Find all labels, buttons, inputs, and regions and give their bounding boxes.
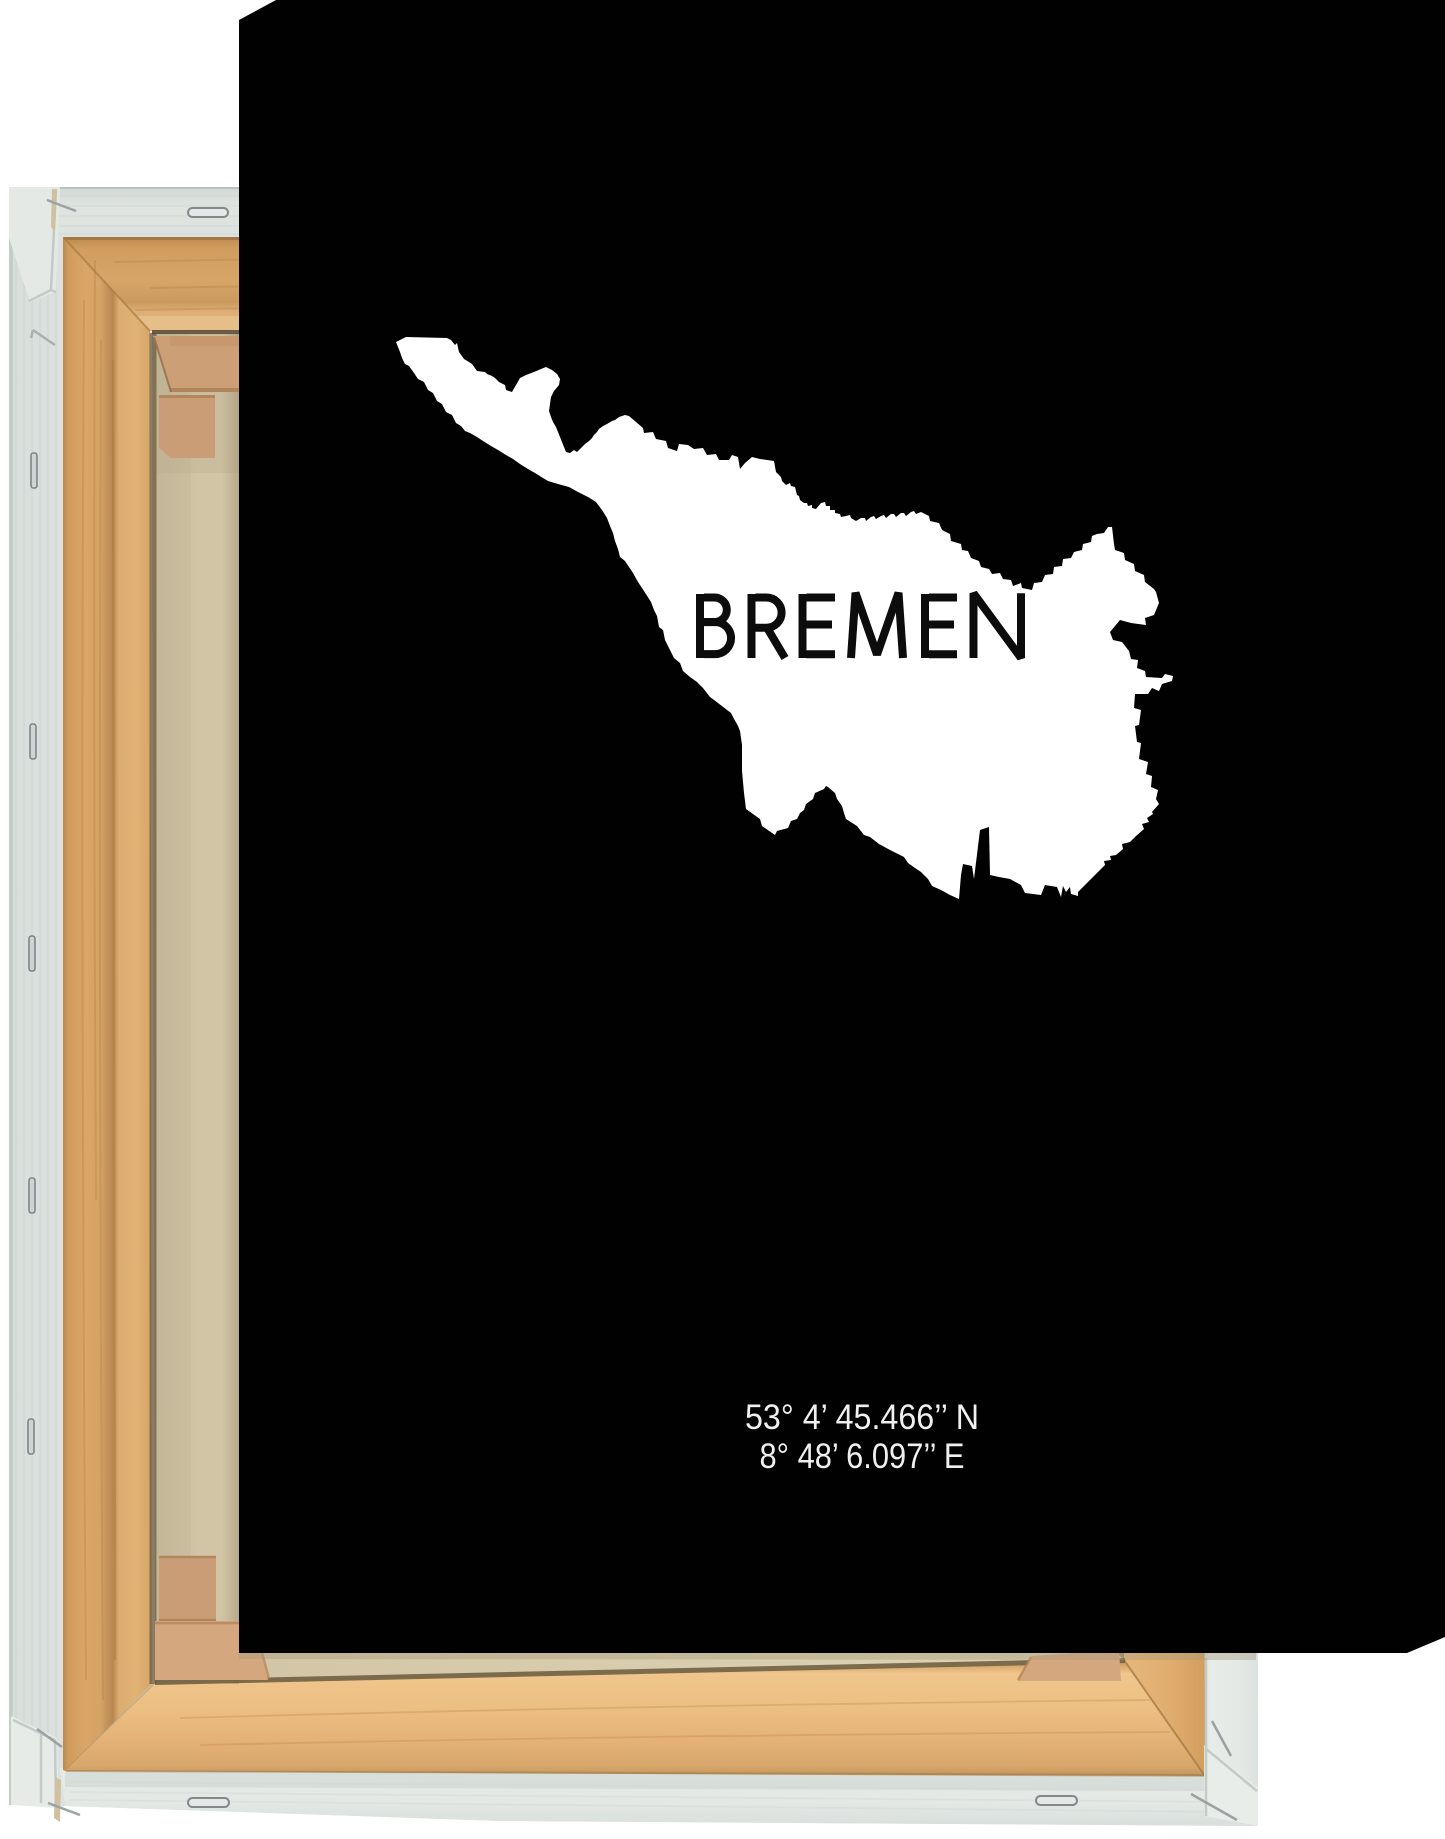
svg-text:53° 4’ 45.466’’ N: 53° 4’ 45.466’’ N [745, 1398, 979, 1437]
svg-text:8° 48’ 6.097’’ E: 8° 48’ 6.097’’ E [760, 1437, 965, 1476]
